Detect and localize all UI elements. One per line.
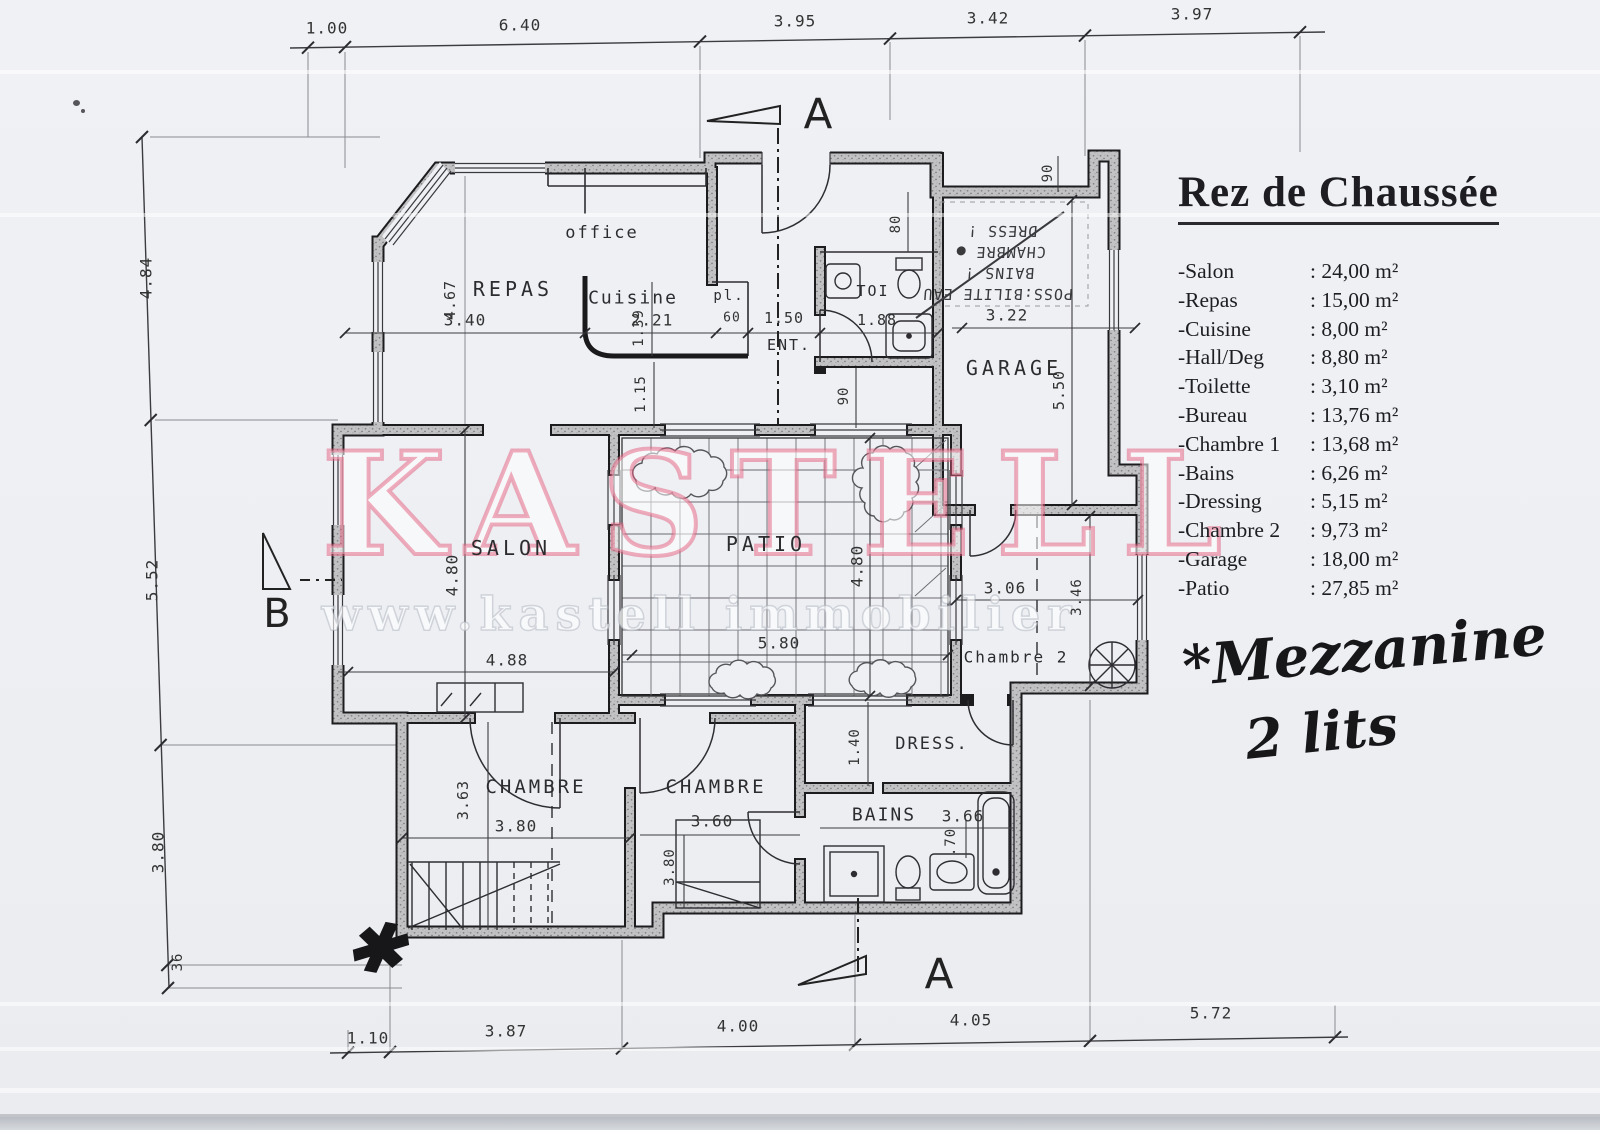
dim-top-2: 3.95 <box>774 12 817 31</box>
dim-salon-h: 4.88 <box>486 651 529 670</box>
room-area-row: -Garage: 18,00 m² <box>1178 545 1584 574</box>
room-area-row: -Toilette: 3,10 m² <box>1178 372 1584 401</box>
room-area-row: -Chambre 2: 9,73 m² <box>1178 516 1584 545</box>
flipped-note-line: POSS:BILITE EAU <box>912 283 1083 304</box>
dim-bottom-2: 4.00 <box>717 1017 760 1036</box>
dim-chambre-right-h: 3.60 <box>691 812 734 831</box>
watermark-url: www.kastell immobilier <box>322 587 1079 641</box>
dim-top-3: 3.42 <box>967 9 1010 28</box>
dim-porch: 80 <box>888 215 904 234</box>
room-area-row: -Patio: 27,85 m² <box>1178 574 1584 603</box>
flipped-note-line: CHAMBRE ● <box>915 241 1086 262</box>
flipped-pencil-note: POSS:BILITE EAU BAINS ! CHAMBRE ● DRESS … <box>912 220 1088 304</box>
room-label-patio: PATIO <box>726 532 806 556</box>
dim-repas-v: 4.67 <box>441 280 459 320</box>
page-title: Rez de Chaussée <box>1178 168 1499 225</box>
room-label-salon: SALON <box>471 536 551 560</box>
dim-bottom-4: 5.72 <box>1190 1004 1233 1023</box>
dim-top-4: 3.97 <box>1171 5 1214 24</box>
dim-left-0: 4.84 <box>137 257 156 300</box>
dim-garage-h: 3.22 <box>986 306 1029 325</box>
dim-dress-v: 1.40 <box>847 728 863 766</box>
dim-garage-step: 90 <box>1040 164 1056 183</box>
dim-ent-w: 1.50 <box>764 309 804 327</box>
legend-panel: Rez de Chaussée -Salon: 24,00 m² -Repas:… <box>1178 168 1584 603</box>
dim-bottom-0: 1.10 <box>347 1029 390 1048</box>
flipped-note-line: DRESS ! <box>916 220 1087 241</box>
room-label-chambre-right: CHAMBRE <box>665 776 766 798</box>
scanned-floorplan-sheet: KASTELL www.kastell immobilier office RE… <box>0 0 1600 1130</box>
room-area-row: -Bureau: 13,76 m² <box>1178 401 1584 430</box>
dim-hall-w: 90 <box>836 387 852 406</box>
dim-top-1: 6.40 <box>499 16 542 35</box>
room-label-bains: BAINS <box>852 805 916 826</box>
room-label-chambre2: Chambre 2 <box>964 648 1069 667</box>
dim-garage-v: 5.50 <box>1050 370 1068 410</box>
dim-chambre-right-v: 3.80 <box>662 848 678 886</box>
room-label-chambre-left: CHAMBRE <box>485 776 586 798</box>
room-area-row: -Repas: 15,00 m² <box>1178 286 1584 315</box>
dim-top-0: 1.00 <box>306 19 349 38</box>
dim-chambre-left-h: 3.80 <box>495 817 538 836</box>
room-area-row: -Cuisine: 8,00 m² <box>1178 315 1584 344</box>
dim-left-3: 36 <box>170 953 186 972</box>
dim-salon-v: 4.80 <box>443 554 462 597</box>
dim-chambre2-v: 3.46 <box>1069 578 1085 616</box>
room-label-cuisine: Cuisine <box>588 288 678 309</box>
room-area-list: -Salon: 24,00 m² -Repas: 15,00 m² -Cuisi… <box>1178 257 1584 603</box>
room-area-row: -Hall/Deg: 8,80 m² <box>1178 343 1584 372</box>
dim-hall-v: 1.15 <box>633 375 649 413</box>
room-label-repas: REPAS <box>473 277 553 301</box>
dim-left-1: 5.52 <box>143 559 162 602</box>
dim-chambre2-h: 3.06 <box>984 579 1027 598</box>
room-label-office: office <box>565 223 638 243</box>
dim-patio-v: 4.80 <box>848 545 867 588</box>
room-label-garage: GARAGE <box>966 356 1062 380</box>
dim-patio-h: 5.80 <box>758 634 801 653</box>
section-mark-a-top: A <box>804 90 833 139</box>
dim-left-2: 3.80 <box>149 831 168 874</box>
dim-cuisine-v: 1.39 <box>631 309 647 347</box>
room-label-entree: ENT. <box>767 336 811 354</box>
room-area-row: -Chambre 1: 13,68 m² <box>1178 430 1584 459</box>
room-area-row: -Salon: 24,00 m² <box>1178 257 1584 286</box>
dim-bains-v: .70 <box>943 828 959 856</box>
dim-chambre-left-v: 3.63 <box>454 780 472 820</box>
room-label-toilette: TOI <box>856 282 889 300</box>
section-mark-a-bottom: A <box>925 950 954 999</box>
dim-bottom-1: 3.87 <box>485 1022 528 1041</box>
room-label-dress: DRESS. <box>895 734 968 754</box>
dim-bottom-3: 4.05 <box>950 1011 993 1030</box>
dim-bains-h: 3.66 <box>942 807 985 826</box>
room-area-row: -Dressing: 5,15 m² <box>1178 487 1584 516</box>
dim-toi-w: 1.88 <box>857 311 897 329</box>
flipped-note-line: BAINS ! <box>914 262 1085 283</box>
section-mark-b: B <box>263 591 290 637</box>
room-area-row: -Bains: 6,26 m² <box>1178 459 1584 488</box>
room-label-placard: pl. <box>713 288 744 304</box>
dim-placard-w: 60 <box>723 311 741 326</box>
